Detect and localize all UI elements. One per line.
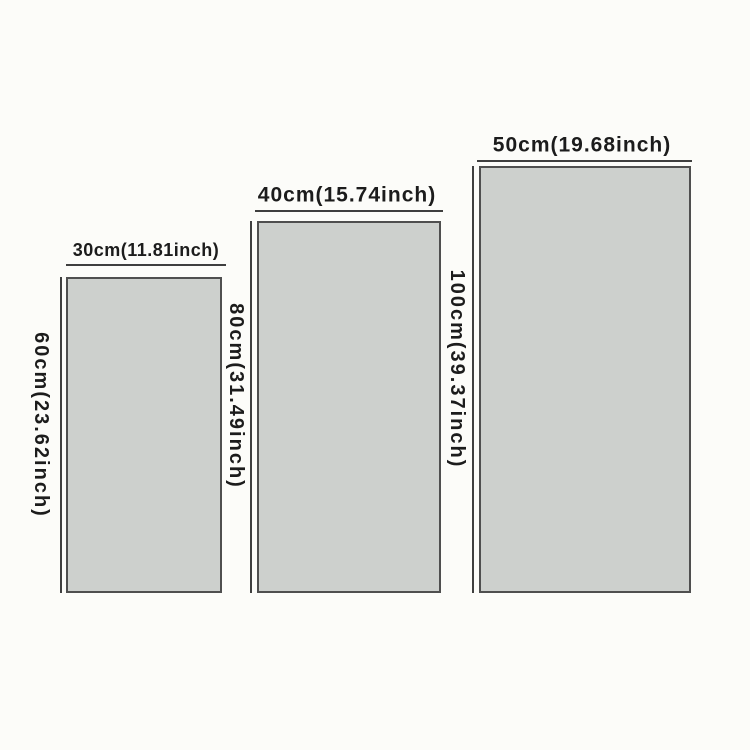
panel-rect (257, 221, 441, 593)
height-dimension-line (60, 277, 62, 593)
width-dimension-label: 30cm(11.81inch) (73, 241, 220, 259)
size-diagram: 30cm(11.81inch) 60cm(23.62inch) 40cm(15.… (0, 0, 750, 750)
height-dimension-line (250, 221, 252, 593)
height-dimension-label: 100cm(39.37inch) (447, 270, 467, 469)
height-dimension-label: 80cm(31.49inch) (226, 303, 246, 489)
width-dimension-line (477, 160, 692, 162)
height-dimension-line (472, 166, 474, 593)
width-dimension-line (255, 210, 443, 212)
panel-rect (479, 166, 691, 593)
width-dimension-line (66, 264, 226, 266)
width-dimension-label: 40cm(15.74inch) (258, 185, 436, 206)
width-dimension-label: 50cm(19.68inch) (493, 135, 671, 156)
height-dimension-label: 60cm(23.62inch) (31, 332, 51, 518)
panel-rect (66, 277, 222, 593)
